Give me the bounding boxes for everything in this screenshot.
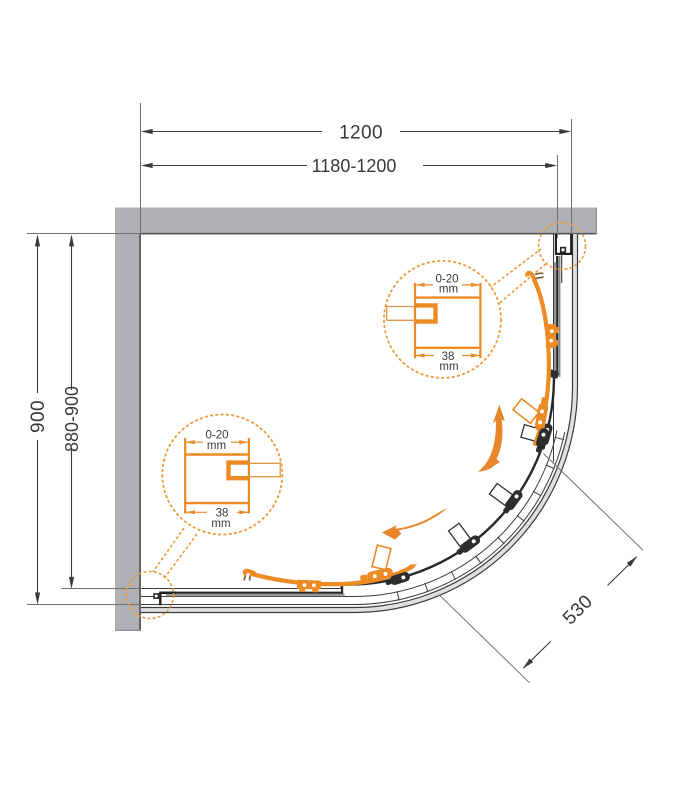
svg-text:mm: mm — [439, 361, 458, 373]
svg-text:900: 900 — [28, 400, 49, 433]
svg-text:530: 530 — [559, 591, 597, 629]
svg-text:mm: mm — [211, 518, 230, 530]
svg-text:880-900: 880-900 — [62, 386, 82, 452]
svg-text:1200: 1200 — [339, 122, 383, 143]
svg-text:mm: mm — [207, 440, 226, 452]
svg-text:1180-1200: 1180-1200 — [312, 156, 397, 176]
svg-text:mm: mm — [439, 284, 458, 296]
